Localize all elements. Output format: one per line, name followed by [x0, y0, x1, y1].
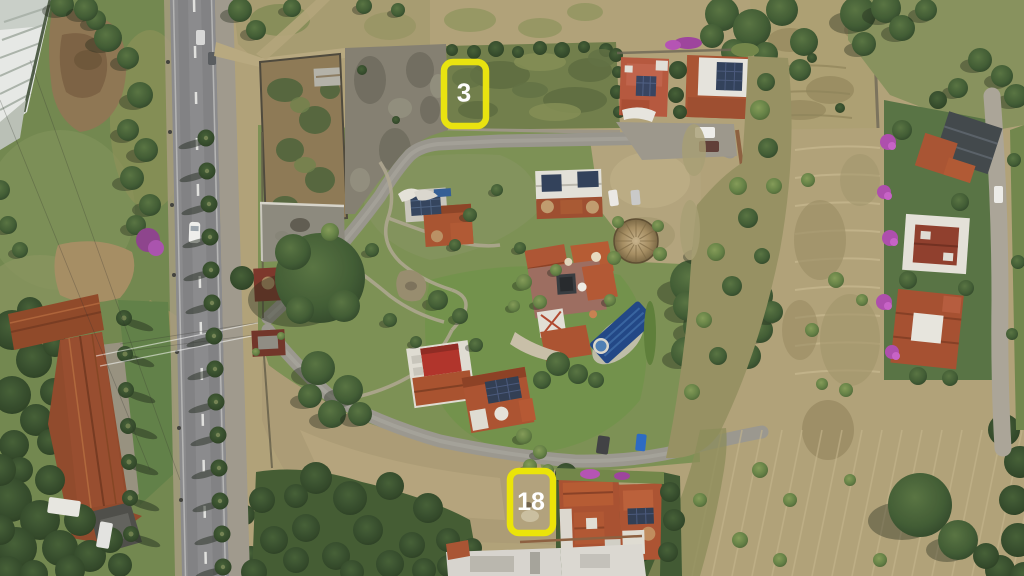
svg-text:18: 18	[517, 488, 545, 516]
